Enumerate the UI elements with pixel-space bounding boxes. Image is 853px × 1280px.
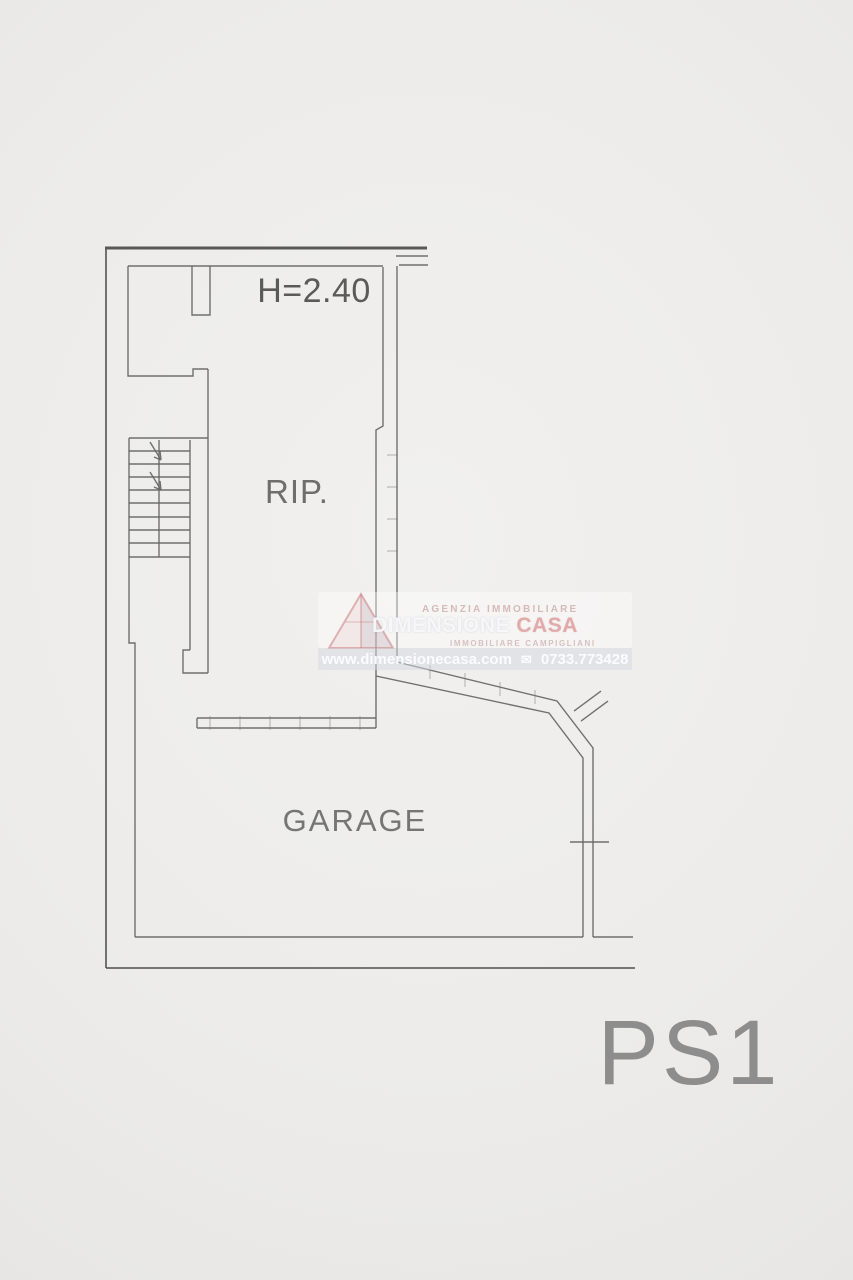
agency-subtitle: IMMOBILIARE CAMPIGLIANI <box>450 639 596 648</box>
phone-label: 0733.773428 <box>541 651 629 668</box>
website-label: www.dimensionecasa.com <box>322 651 512 668</box>
height-label: H=2.40 <box>257 272 371 310</box>
room-label-garage: GARAGE <box>283 803 428 838</box>
agency-name-accent: CASA <box>516 614 578 637</box>
room-label-rip: RIP. <box>265 473 329 510</box>
stairwell-wall-foot <box>183 650 208 673</box>
garage-walls <box>197 665 609 937</box>
agency-name: DIMENSIONE CASA <box>372 614 578 638</box>
envelope-icon: ✉ <box>521 653 532 666</box>
agency-watermark: AGENZIA IMMOBILIARE DIMENSIONE CASA IMMO… <box>318 592 632 670</box>
staircase <box>129 438 208 557</box>
pillar <box>192 266 210 315</box>
left-inner-wall <box>129 438 135 937</box>
upper-room-wall <box>128 266 208 376</box>
door-swing-marks <box>574 691 608 721</box>
garage-top-wall <box>197 718 376 728</box>
watermark-footer-bar: www.dimensionecasa.com ✉ 0733.773428 <box>318 648 632 670</box>
top-right-cut-lines <box>396 256 428 265</box>
floorplan-scan: H=2.40 RIP. GARAGE PS1 AGENZIA IMMOBILIA… <box>0 0 853 1280</box>
agency-name-primary: DIMENSIONE <box>372 614 510 637</box>
floor-level-label: PS1 <box>598 1002 781 1104</box>
